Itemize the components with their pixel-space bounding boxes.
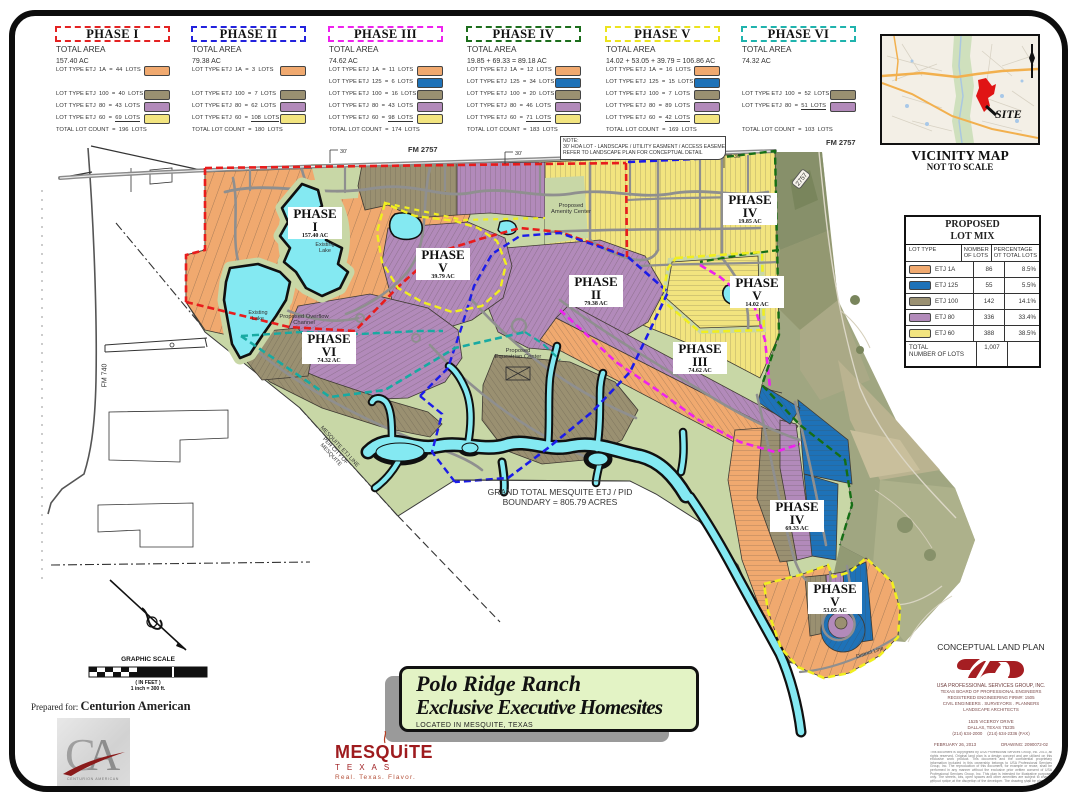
svg-text:CENTURION AMERICAN: CENTURION AMERICAN [67, 777, 119, 781]
svg-text:SITE: SITE [995, 107, 1022, 121]
svg-text:30': 30' [515, 151, 522, 157]
svg-text:30': 30' [734, 154, 741, 160]
svg-text:30': 30' [340, 149, 347, 155]
